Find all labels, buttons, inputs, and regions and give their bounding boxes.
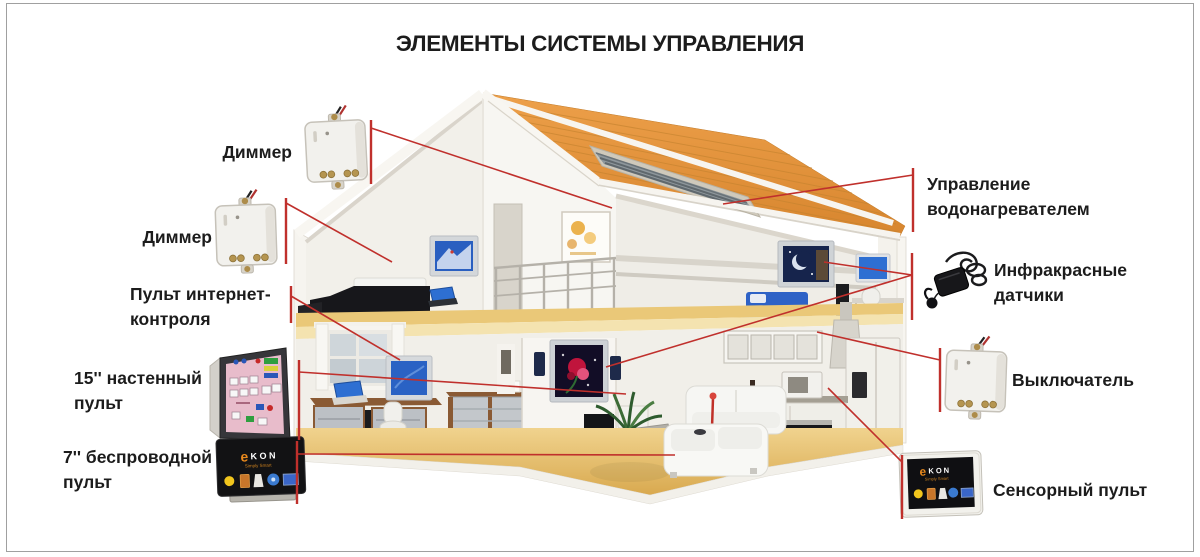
connector-line [371, 128, 612, 208]
connector-line [291, 296, 400, 360]
label-touch-panel: Сенсорный пульт [993, 478, 1147, 503]
label-dimmer-middle: Диммер [80, 225, 212, 250]
diagram-canvas: e KON Simply Smart [0, 0, 1200, 557]
connector-line [297, 454, 675, 455]
connector-line [606, 275, 912, 367]
label-water-heater: Управление водонагревателем [927, 172, 1090, 222]
label-dimmer-top: Диммер [160, 140, 292, 165]
page-title: ЭЛЕМЕНТЫ СИСТЕМЫ УПРАВЛЕНИЯ [0, 31, 1200, 57]
label-wall-panel-15: 15'' настенный пульт [74, 366, 202, 416]
label-wireless-panel-7: 7'' беспроводной пульт [63, 445, 212, 495]
connector-line [817, 332, 940, 360]
connector-line [723, 175, 913, 204]
connector-line [286, 203, 392, 262]
connector-line [299, 372, 626, 394]
connector-line [824, 262, 912, 275]
label-internet-control: Пульт интернет- контроля [130, 282, 271, 332]
connector-line [828, 388, 902, 462]
label-switch: Выключатель [1012, 368, 1134, 393]
label-ir-sensors: Инфракрасные датчики [994, 258, 1127, 308]
